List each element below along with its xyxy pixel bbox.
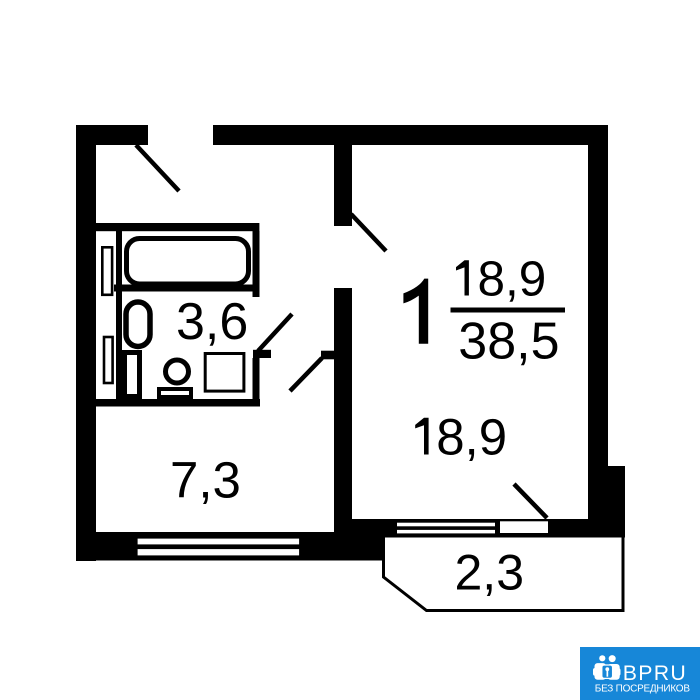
svg-text:BPRU: BPRU xyxy=(623,661,687,685)
svg-text:38,5: 38,5 xyxy=(458,313,559,371)
svg-text:8,9: 8,9 xyxy=(436,409,507,466)
svg-text:7,3: 7,3 xyxy=(170,451,241,508)
svg-text:БЕЗ ПОСРЕДНИКОВ: БЕЗ ПОСРЕДНИКОВ xyxy=(595,683,691,694)
svg-text:2,3: 2,3 xyxy=(455,544,525,600)
svg-text:3,6: 3,6 xyxy=(176,293,248,351)
svg-text:8,9: 8,9 xyxy=(478,252,547,307)
